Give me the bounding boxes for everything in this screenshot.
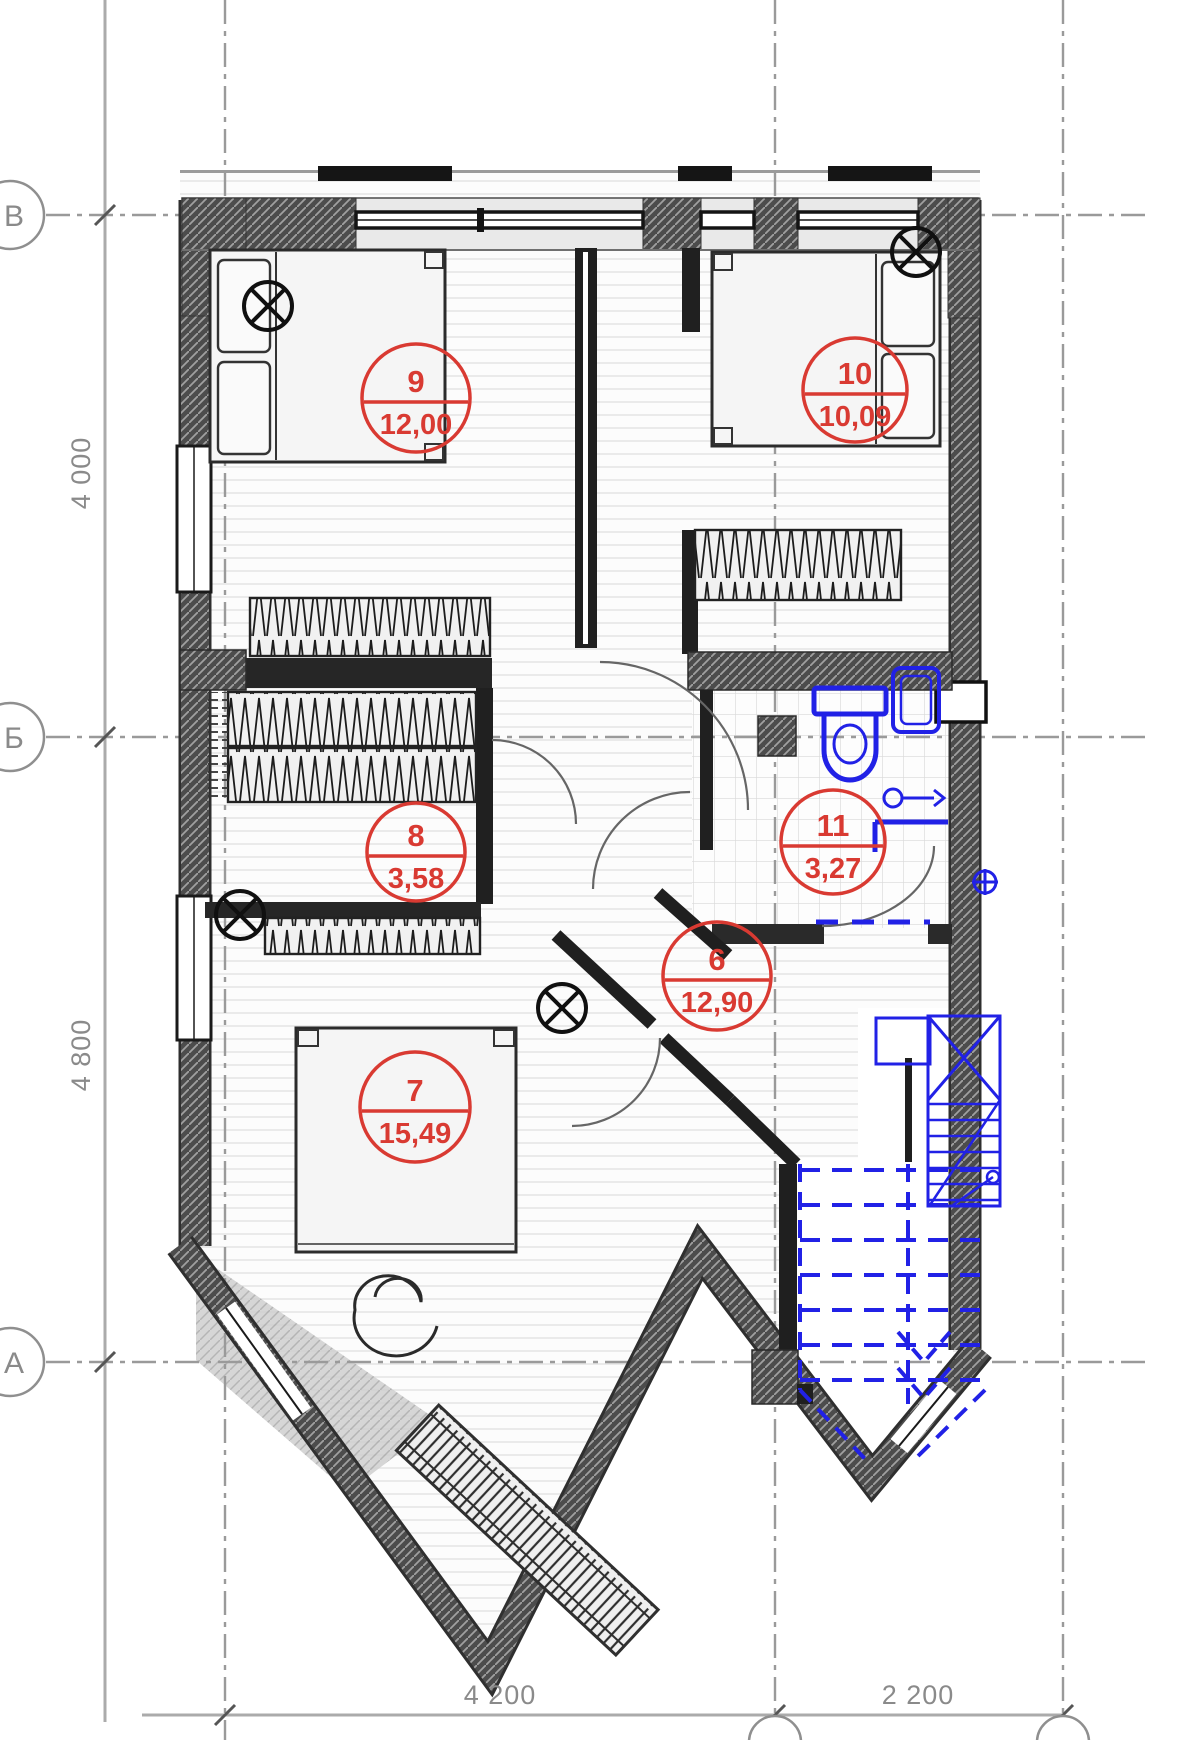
axis-label-a: А: [4, 1347, 24, 1380]
svg-text:10,09: 10,09: [819, 401, 892, 433]
pillow: [218, 362, 270, 454]
svg-text:15,49: 15,49: [379, 1118, 452, 1150]
window-frame: [318, 166, 452, 181]
wardrobe-room9: [250, 598, 490, 656]
shelf-comb: [208, 692, 228, 802]
svg-text:12,90: 12,90: [681, 987, 754, 1019]
floor-plan-page: 4 000 4 800 4 200 2 200 В Б А 9 12,00 10…: [0, 0, 1200, 1740]
window-frame: [678, 166, 732, 181]
svg-text:3,58: 3,58: [388, 863, 444, 895]
wardrobe-room10: [695, 530, 901, 600]
top-window-glazing: [356, 208, 918, 232]
svg-text:6: 6: [708, 942, 725, 977]
svg-text:8: 8: [407, 818, 424, 853]
dim-left-lower: 4 800: [66, 1019, 96, 1092]
wardrobe-room8-top: [228, 692, 476, 746]
dim-left-upper: 4 000: [66, 437, 96, 510]
svg-text:7: 7: [406, 1073, 423, 1108]
axis-label-v: В: [4, 200, 24, 233]
wardrobe-room8-bottom: [228, 748, 476, 802]
svg-text:12,00: 12,00: [380, 409, 453, 441]
svg-text:9: 9: [407, 364, 424, 399]
wardrobe-room7: [265, 918, 480, 954]
dim-bottom-left: 4 200: [464, 1680, 537, 1710]
svg-text:3,27: 3,27: [805, 853, 861, 885]
svg-text:11: 11: [817, 808, 850, 843]
window-frame: [828, 166, 932, 181]
axis-label-b: Б: [4, 722, 24, 755]
dim-bottom-right: 2 200: [882, 1680, 955, 1710]
floor-plan-drawing: 4 000 4 800 4 200 2 200 В Б А 9 12,00 10…: [0, 0, 1200, 1740]
svg-text:10: 10: [838, 356, 872, 391]
